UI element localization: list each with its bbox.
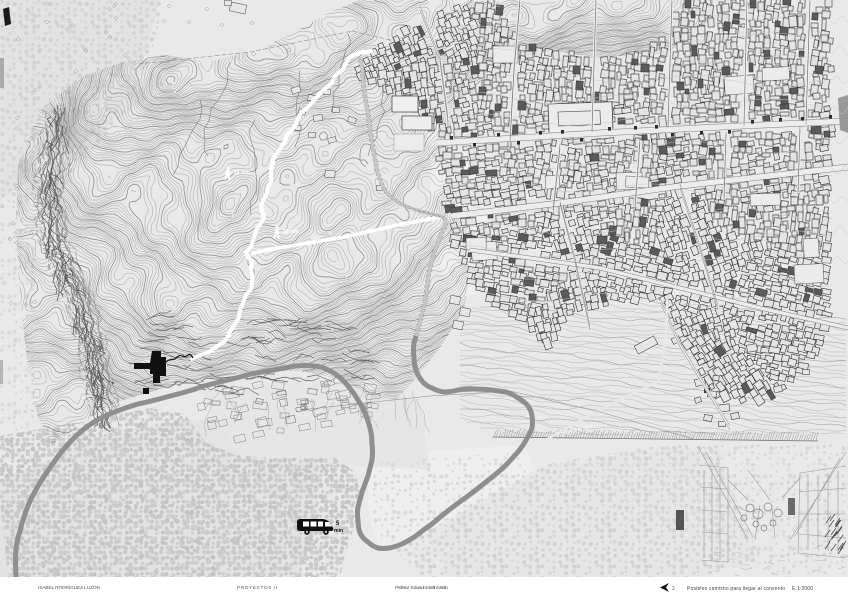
- svg-text:min: min: [334, 528, 343, 534]
- svg-text:ISABEL RODRÍGUEZ LUZÓN: ISABEL RODRÍGUEZ LUZÓN: [38, 584, 101, 591]
- svg-text:Profesor : Eduardo Martín Mart: Profesor : Eduardo Martín Martín: [395, 585, 448, 591]
- svg-text:15 min: 15 min: [234, 170, 250, 176]
- svg-text:10 min: 10 min: [283, 229, 299, 235]
- svg-text:2: 2: [672, 586, 675, 592]
- svg-text:E:1:2000: E:1:2000: [792, 586, 813, 592]
- svg-text:Posibles camisno para llegar a: Posibles camisno para llegar al convento: [687, 586, 785, 592]
- svg-text:PROYECTOS II: PROYECTOS II: [237, 585, 277, 591]
